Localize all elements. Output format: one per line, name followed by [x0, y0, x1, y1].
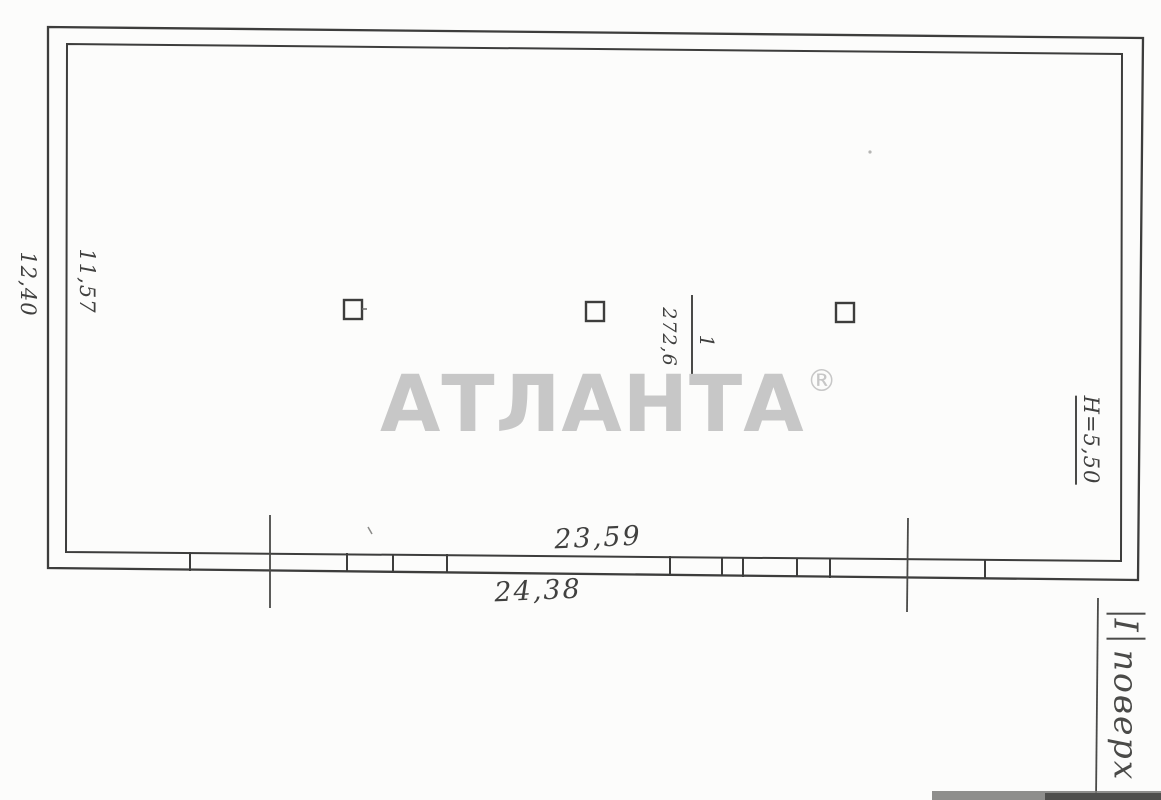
ceiling-height-note: H=5,50 [1075, 396, 1103, 485]
scan-smudge-bottom-right-dark [1045, 793, 1161, 800]
column-2 [586, 302, 604, 321]
registered-trademark-symbol: ® [807, 367, 838, 397]
scan-stray-mark [368, 527, 372, 534]
dimension-left-inner: 11,57 [75, 248, 99, 313]
floor-label: Іповерх [1107, 613, 1146, 782]
column-3 [836, 303, 854, 322]
scan-speck-top [868, 150, 871, 153]
watermark-text: АТЛАНТА [380, 360, 805, 450]
floor-label-line [1096, 598, 1098, 800]
dimension-bottom-inner: 23,59 [554, 521, 643, 556]
floor-word: поверх [1107, 650, 1146, 782]
dimension-bottom-outer: 24,38 [494, 574, 583, 609]
agency-watermark: АТЛАНТА® [380, 366, 838, 444]
room-number-value: 1 [695, 335, 719, 348]
scanned-floor-plan-page: АТЛАНТА® 12,40 11,57 23,59 24,38 H=5,50 … [0, 0, 1161, 800]
dimension-left-outer: 12,40 [16, 251, 40, 316]
floor-numeral: І [1107, 613, 1146, 640]
room-area-value: 272,6 [658, 307, 680, 366]
column-1 [344, 300, 362, 319]
extension-line-right [907, 518, 908, 612]
